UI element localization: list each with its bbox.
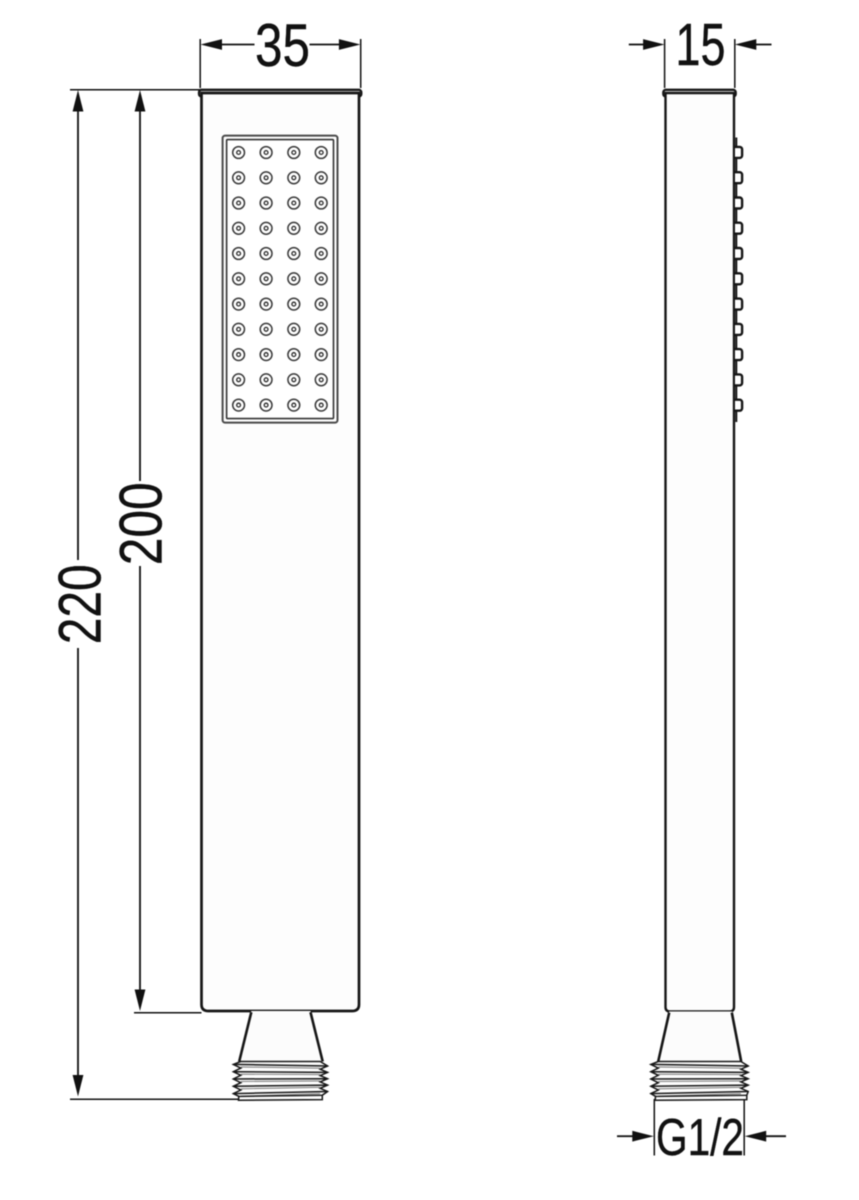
svg-text:15: 15 xyxy=(676,12,726,78)
svg-text:35: 35 xyxy=(255,12,310,79)
svg-text:200: 200 xyxy=(108,482,175,565)
svg-text:220: 220 xyxy=(47,564,114,644)
svg-text:G1/2: G1/2 xyxy=(656,1109,744,1167)
